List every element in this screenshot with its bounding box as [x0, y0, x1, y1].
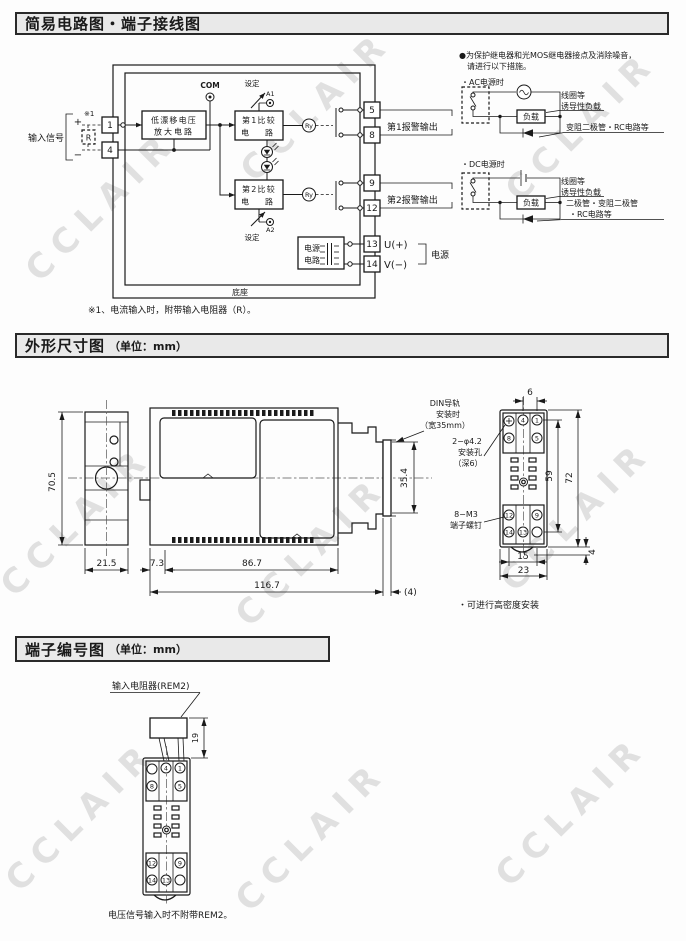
comp2-label-line1: 第2比较: [242, 184, 276, 194]
led-indicators: [262, 140, 279, 180]
socket2-num-9: 9: [535, 512, 539, 520]
socket3-num-1: 1: [178, 765, 182, 773]
comp1-label-line2: 电 路: [241, 128, 277, 138]
socket2-terminal-5: 5: [532, 433, 542, 443]
socket3-num-5: 5: [178, 783, 182, 791]
terminal-4-number: 4: [107, 146, 113, 156]
dim-86-7: 86.7: [242, 559, 262, 569]
com-label: COM: [200, 81, 219, 90]
socket2-num-4: 4: [521, 417, 525, 425]
protection-note: ●为保护继电器和光MOS继电器接点及消除噪音， 请进行以下措施。: [459, 50, 636, 71]
dimension-35-4: 35.4: [392, 442, 418, 513]
hole-callout-line2: 安装孔: [458, 447, 482, 457]
power-terminal-labels: U(+) V(−) 电源: [384, 240, 449, 271]
relay1: Ry: [283, 108, 364, 137]
terminal-14-number: 14: [366, 260, 378, 270]
socket2-num-8: 8: [507, 435, 511, 443]
socket3-num-14: 14: [148, 877, 156, 885]
dc-coil-label-line1: 线圈等: [561, 176, 585, 186]
din-rail: [383, 440, 391, 516]
dim-6: 6: [527, 388, 533, 398]
socket2-terminal-8: 8: [504, 433, 514, 443]
terminal-13-number: 13: [366, 240, 377, 250]
comp1-label-line1: 第1比较: [242, 115, 276, 125]
base-label: 底座: [232, 287, 248, 297]
setting-a1: A1 设定: [245, 78, 275, 111]
ac-load-label: 负载: [523, 112, 539, 122]
dimension-19: 19: [189, 718, 208, 758]
terminal-5-number: 5: [369, 106, 375, 116]
rem2-label: 输入电阻器(REM2): [112, 680, 189, 692]
hole-callout-line3: （深6）: [453, 459, 482, 468]
section1-title: 简易电路图・端子接线图: [25, 13, 201, 34]
socket3-num-12: 12: [148, 860, 156, 868]
power-bracket-label: 电源: [431, 249, 449, 261]
dim-15: 15: [517, 552, 528, 562]
plus-sign: +: [74, 117, 82, 128]
socket2-terminal-12: 12: [504, 510, 514, 520]
input-signal-label: 输入信号: [28, 132, 64, 144]
side-view: [140, 408, 396, 545]
circuit-diagram-svg: 底座 输入信号 + − ※1 R 1 4 低漂移电压 放大电: [0, 40, 686, 330]
ry2-label: Ry: [305, 191, 313, 199]
dc-protection-circuit: ・DC电源时 负载 线圈等 诱导性负载 二极管・变阻二极管 ・RC电路等: [461, 159, 664, 224]
terminal-12-number: 12: [366, 204, 377, 214]
socket-front-view: 4 1 8 5 12 9 14 13: [143, 746, 190, 906]
ry1-label: Ry: [305, 122, 313, 130]
socket2-num-5: 5: [535, 435, 539, 443]
setting-label-a1: 设定: [245, 78, 260, 88]
rem2-note: 电压信号输入时不附带REM2。: [108, 909, 232, 921]
section1-header: 简易电路图・端子接线图: [15, 12, 669, 35]
dim-59: 59: [545, 470, 555, 482]
socket3-terminal-9: 9: [175, 858, 185, 868]
socket3-terminal-12: 12: [147, 858, 157, 868]
setting-a2: A2 设定: [245, 209, 275, 242]
a1-label: A1: [266, 90, 275, 98]
dim-70-5: 70.5: [48, 472, 58, 492]
terminal-5: 5: [364, 102, 380, 118]
socket3-terminal-5: 5: [175, 781, 185, 791]
section2-unit: （单位：mm）: [109, 338, 187, 354]
ac-suppressor-label: 变阻二极管・RC电路等: [566, 122, 649, 132]
dim-4-paren: (4): [404, 588, 417, 598]
socket3-terminal-13: 13: [161, 875, 171, 885]
screw-callout: 8−M3 端子螺钉: [450, 510, 504, 530]
amp-label-line2: 放大电路: [154, 127, 194, 137]
terminal-numbering-svg: 输入电阻器(REM2) 19 4 1 8 5: [0, 672, 686, 941]
socket3-terminal-4: 4: [161, 763, 171, 773]
screw-callout-line1: 8−M3: [454, 510, 478, 519]
socket-rear-view: 4 1 8 5 12 9 14 13: [500, 396, 547, 558]
socket3-num-9: 9: [178, 860, 182, 868]
section2-title: 外形尺寸图: [25, 335, 105, 356]
u-plus-label: U(+): [384, 240, 408, 251]
socket2-num-1: 1: [535, 417, 539, 425]
power-box-line2: 电路: [304, 255, 320, 265]
alarm2-output: 第2报警输出: [380, 183, 452, 208]
socket2-num-14: 14: [505, 529, 513, 537]
dc-coil-label-line2: 诱导性负载: [561, 187, 601, 197]
socket2-num-13: 13: [519, 529, 527, 537]
v-minus-label: V(−): [384, 260, 407, 271]
comp2-label-line2: 电 路: [241, 197, 277, 207]
terminal-1: 1: [102, 117, 118, 133]
section3-title: 端子编号图: [25, 639, 105, 660]
socket3-num-13: 13: [162, 877, 170, 885]
protection-note-line2: 请进行以下措施。: [467, 61, 531, 71]
bottom-dimension-chain: 7.3 86.7 116.7 (4): [140, 518, 417, 598]
hole-callout-line1: 2−φ4.2: [452, 437, 482, 446]
dimension-15: 15: [499, 548, 547, 566]
alarm1-label: 第1报警输出: [387, 121, 438, 133]
note-ref: ※1: [84, 110, 94, 118]
terminal-1-number: 1: [107, 121, 113, 131]
din-callout-line2: 安装时: [436, 409, 460, 419]
din-callout-line1: DIN导轨: [430, 398, 461, 408]
terminal-9-number: 9: [369, 179, 375, 189]
din-rail-callout: DIN导轨 安装时 （宽35mm）: [396, 398, 470, 442]
high-density-note: ・可进行高密度安装: [458, 599, 539, 611]
socket2-terminal-13: 13: [518, 527, 528, 537]
socket2-num-12: 12: [505, 512, 513, 520]
screw-callout-line2: 端子螺钉: [450, 520, 482, 530]
dim-35-4: 35.4: [400, 468, 410, 488]
section3-unit: （单位：mm）: [109, 641, 187, 657]
socket3-terminal-8: 8: [147, 781, 157, 791]
terminal-9: 9: [364, 175, 380, 191]
rem2-resistor: [150, 718, 187, 761]
dim-116-7: 116.7: [254, 581, 280, 591]
comparator1-box: 第1比较 电 路: [235, 111, 283, 140]
datasheet-page: CCLAIR CCLAIR CCLAIR CCLAIR CCLAIR CCLAI…: [0, 0, 686, 941]
power-box-line1: 电源: [304, 243, 320, 253]
dim-72: 72: [565, 472, 575, 483]
a2-label: A2: [266, 226, 275, 234]
din-callout-line3: （宽35mm）: [420, 420, 470, 430]
socket2-terminal-4: 4: [518, 415, 528, 425]
dc-suppressor-label-line2: ・RC电路等: [569, 209, 612, 219]
dc-power-label: ・DC电源时: [461, 159, 505, 169]
dimension-6: 6: [513, 388, 547, 411]
dim-21-5: 21.5: [96, 559, 116, 569]
socket3-num-4: 4: [164, 765, 168, 773]
ac-coil-label-line2: 诱导性负载: [561, 101, 601, 111]
comparator2-box: 第2比较 电 路: [235, 180, 283, 209]
power-circuit-box: 电源 电路: [298, 237, 344, 269]
dimension-59: 59: [543, 420, 562, 532]
rem2-callout: 输入电阻器(REM2): [110, 680, 200, 717]
hole-callout: 2−φ4.2 安装孔 （深6）: [452, 425, 505, 468]
circuit-footnote: ※1、电流输入时，附带输入电阻器（R）。: [88, 304, 256, 316]
socket2-terminal-1: 1: [532, 415, 542, 425]
socket2-terminal-14: 14: [504, 527, 514, 537]
protection-note-line1: ●为保护继电器和光MOS继电器接点及消除噪音，: [459, 50, 636, 60]
section3-header: 端子编号图 （单位：mm）: [15, 636, 330, 662]
input-resistor-label: R: [86, 134, 92, 143]
socket3-terminal-14: 14: [147, 875, 157, 885]
minus-sign: −: [74, 150, 82, 161]
dc-load-label: 负载: [523, 198, 539, 208]
alarm2-label: 第2报警输出: [387, 194, 438, 206]
terminal-4: 4: [102, 142, 118, 158]
socket2-terminal-9: 9: [532, 510, 542, 520]
dc-suppressor-label-line1: 二极管・变阻二极管: [566, 198, 638, 208]
dim-23: 23: [518, 566, 529, 576]
ac-power-label: ・AC电源时: [461, 77, 504, 87]
dim-4: 4: [588, 549, 598, 555]
input-signal-group: 输入信号 + − ※1 R: [28, 110, 102, 161]
dim-7-3: 7.3: [150, 559, 164, 569]
dimension-drawing-svg: 70.5 21.5 DIN导轨 安装时 （宽35mm）: [0, 370, 686, 635]
socket3-terminal-1: 1: [175, 763, 185, 773]
ac-protection-circuit: ・AC电源时 负载 线圈等 诱导性负载 变阻二极管・RC电路等: [461, 77, 664, 138]
terminal-13: 13: [364, 236, 380, 252]
amplifier-box: 低漂移电压 放大电路: [142, 111, 206, 139]
com-terminal: COM: [200, 81, 219, 101]
setting-label-a2: 设定: [245, 232, 260, 242]
dimension-70-5: 70.5: [48, 412, 83, 545]
terminal-14: 14: [364, 256, 380, 272]
ac-coil-label-line1: 线圈等: [561, 90, 585, 100]
dim-19: 19: [191, 733, 200, 743]
terminal-8: 8: [364, 127, 380, 143]
amp-label-line1: 低漂移电压: [151, 115, 197, 125]
terminal-12: 12: [364, 200, 380, 216]
terminal-8-number: 8: [369, 131, 375, 141]
alarm1-output: 第1报警输出: [380, 110, 452, 135]
section2-header: 外形尺寸图 （单位：mm）: [15, 333, 669, 358]
relay2: Ry: [283, 181, 364, 210]
socket3-num-8: 8: [150, 783, 154, 791]
